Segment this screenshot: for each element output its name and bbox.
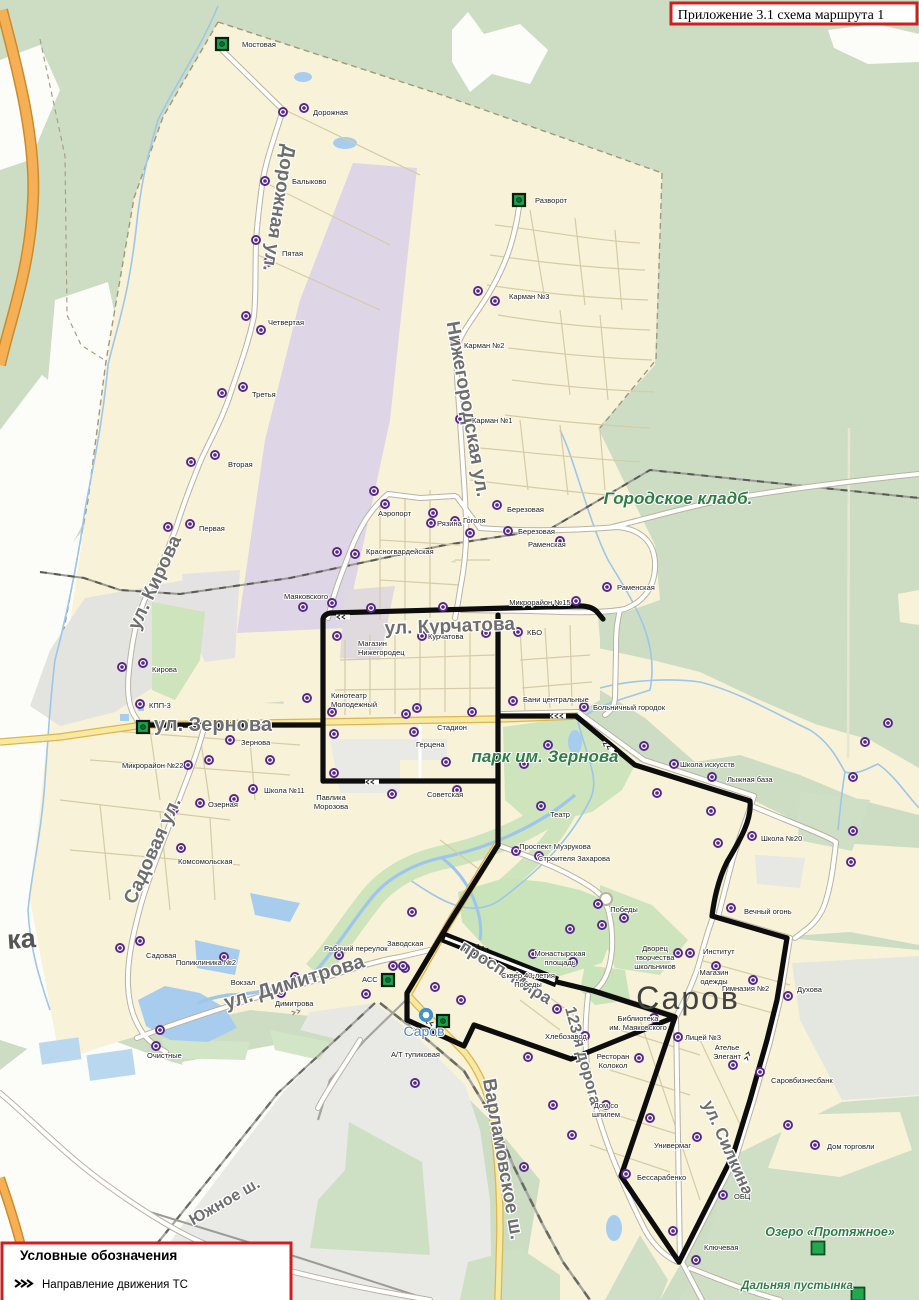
- svg-text:Зернова: Зернова: [241, 738, 271, 747]
- svg-text:Дворец: Дворец: [642, 944, 668, 953]
- svg-text:Проспект Музрукова: Проспект Музрукова: [519, 842, 591, 851]
- svg-text:Микрорайон №15: Микрорайон №15: [509, 598, 570, 607]
- svg-text:ОБЦ: ОБЦ: [734, 1192, 751, 1201]
- svg-text:Универмаг: Универмаг: [654, 1141, 691, 1150]
- svg-text:Раменская: Раменская: [617, 583, 655, 592]
- svg-text:Дом со: Дом со: [594, 1101, 619, 1110]
- svg-text:Вечный огонь: Вечный огонь: [744, 907, 792, 916]
- svg-text:Элегант: Элегант: [713, 1052, 742, 1061]
- svg-text:Вторая: Вторая: [228, 460, 253, 469]
- svg-text:Первая: Первая: [199, 524, 225, 533]
- svg-text:Монастырская: Монастырская: [535, 949, 586, 958]
- svg-text:Кинотеатр: Кинотеатр: [331, 691, 367, 700]
- svg-text:А/Т тупиковая: А/Т тупиковая: [391, 1050, 440, 1059]
- svg-text:Колокол: Колокол: [599, 1061, 628, 1070]
- svg-text:Кирова: Кирова: [152, 665, 178, 674]
- svg-text:Садовая: Садовая: [146, 951, 176, 960]
- svg-text:Школа №20: Школа №20: [761, 834, 802, 843]
- svg-text:Молодежный: Молодежный: [331, 700, 377, 709]
- svg-text:Заводская: Заводская: [387, 939, 423, 948]
- svg-text:Рязина: Рязина: [437, 519, 463, 528]
- svg-text:Аэропорт: Аэропорт: [378, 509, 412, 518]
- svg-text:Курчатова: Курчатова: [428, 632, 464, 641]
- svg-text:школьников: школьников: [634, 962, 676, 971]
- svg-text:Лыжная база: Лыжная база: [727, 775, 773, 784]
- svg-text:Дальняя пустынка: Дальняя пустынка: [740, 1280, 853, 1292]
- svg-text:Институт: Институт: [703, 947, 735, 956]
- svg-text:Сквер 40-летия: Сквер 40-летия: [501, 971, 555, 980]
- svg-text:Бани центральные: Бани центральные: [523, 695, 589, 704]
- svg-text:Магазин: Магазин: [700, 968, 729, 977]
- svg-text:Духова: Духова: [797, 985, 823, 994]
- svg-text:Дом торговли: Дом торговли: [827, 1142, 874, 1151]
- svg-text:Театр: Театр: [550, 810, 570, 819]
- svg-text:КПП-3: КПП-3: [149, 701, 171, 710]
- svg-text:Саров: Саров: [403, 1023, 444, 1039]
- svg-text:Магазин: Магазин: [358, 639, 387, 648]
- svg-text:Гимназия №2: Гимназия №2: [722, 984, 769, 993]
- svg-text:Ателье: Ателье: [715, 1043, 740, 1052]
- svg-text:Мостовая: Мостовая: [242, 40, 276, 49]
- svg-text:Лицей №3: Лицей №3: [685, 1033, 721, 1042]
- svg-text:Нижегородец: Нижегородец: [358, 648, 405, 657]
- svg-text:Березовая: Березовая: [518, 527, 555, 536]
- svg-text:Третья: Третья: [252, 390, 276, 399]
- svg-text:ул. Зернова: ул. Зернова: [154, 714, 273, 736]
- svg-text:Дорожная: Дорожная: [313, 108, 348, 117]
- svg-text:Очистные: Очистные: [147, 1051, 182, 1060]
- svg-text:Четвертая: Четвертая: [268, 318, 304, 327]
- svg-text:Разворот: Разворот: [535, 196, 568, 205]
- svg-text:Красногвардейская: Красногвардейская: [366, 547, 434, 556]
- svg-text:Вокзал: Вокзал: [231, 978, 256, 987]
- svg-text:шпилем: шпилем: [592, 1110, 620, 1119]
- svg-text:Советская: Советская: [427, 790, 463, 799]
- svg-text:ка: ка: [6, 923, 38, 955]
- svg-text:КБО: КБО: [527, 628, 542, 637]
- svg-text:Павлика: Павлика: [316, 793, 346, 802]
- svg-text:Бессарабенко: Бессарабенко: [637, 1173, 686, 1182]
- svg-text:Гоголя: Гоголя: [463, 516, 486, 525]
- svg-text:Школа искусств: Школа искусств: [680, 760, 735, 769]
- svg-text:Ресторан: Ресторан: [597, 1052, 630, 1061]
- svg-text:площадь: площадь: [544, 958, 575, 967]
- svg-text:Условные обозначения: Условные обозначения: [20, 1248, 177, 1263]
- svg-text:Приложение 3.1 схема маршрута: Приложение 3.1 схема маршрута 1: [678, 8, 885, 23]
- svg-text:Березовая: Березовая: [507, 505, 544, 514]
- svg-text:им. Маяковского: им. Маяковского: [609, 1023, 667, 1032]
- svg-text:Саровбизнесбанк: Саровбизнесбанк: [771, 1076, 833, 1085]
- svg-text:Комсомольская: Комсомольская: [178, 857, 233, 866]
- svg-text:творчества: творчества: [636, 953, 676, 962]
- svg-text:Хлебозавод: Хлебозавод: [545, 1032, 587, 1041]
- svg-text:Победы: Победы: [514, 980, 542, 989]
- svg-text:Маяковского: Маяковского: [284, 592, 328, 601]
- svg-text:Морозова: Морозова: [314, 802, 349, 811]
- svg-text:Пятая: Пятая: [282, 249, 303, 258]
- svg-text:Карман №2: Карман №2: [464, 341, 504, 350]
- svg-text:Рабочий переулок: Рабочий переулок: [324, 944, 388, 953]
- svg-text:Микрорайон №22: Микрорайон №22: [122, 761, 183, 770]
- svg-text:Строителя Захарова: Строителя Захарова: [538, 854, 611, 863]
- svg-text:Стадион: Стадион: [437, 723, 467, 732]
- svg-text:Поликлиника №2: Поликлиника №2: [176, 958, 236, 967]
- svg-text:Герцена: Герцена: [416, 740, 445, 749]
- svg-text:Димитрова: Димитрова: [275, 999, 314, 1008]
- svg-text:Балыково: Балыково: [292, 177, 326, 186]
- svg-text:АСС: АСС: [362, 975, 378, 984]
- svg-text:Городское кладб.: Городское кладб.: [604, 489, 753, 508]
- svg-text:Ключевая: Ключевая: [704, 1243, 738, 1252]
- svg-text:Раменская: Раменская: [528, 540, 566, 549]
- svg-text:Карман №1: Карман №1: [472, 416, 512, 425]
- svg-text:Направление движения ТС: Направление движения ТС: [42, 1279, 188, 1291]
- svg-text:Озерная: Озерная: [208, 800, 238, 809]
- svg-text:Больничный городок: Больничный городок: [593, 703, 666, 712]
- svg-text:Победы: Победы: [610, 905, 638, 914]
- svg-text:Карман №3: Карман №3: [509, 292, 549, 301]
- svg-text:Библиотека: Библиотека: [618, 1014, 660, 1023]
- svg-text:Школа №11: Школа №11: [264, 786, 305, 795]
- svg-text:Озеро «Протяжное»: Озеро «Протяжное»: [765, 1225, 895, 1239]
- svg-text:парк им. Зернова: парк им. Зернова: [472, 747, 619, 766]
